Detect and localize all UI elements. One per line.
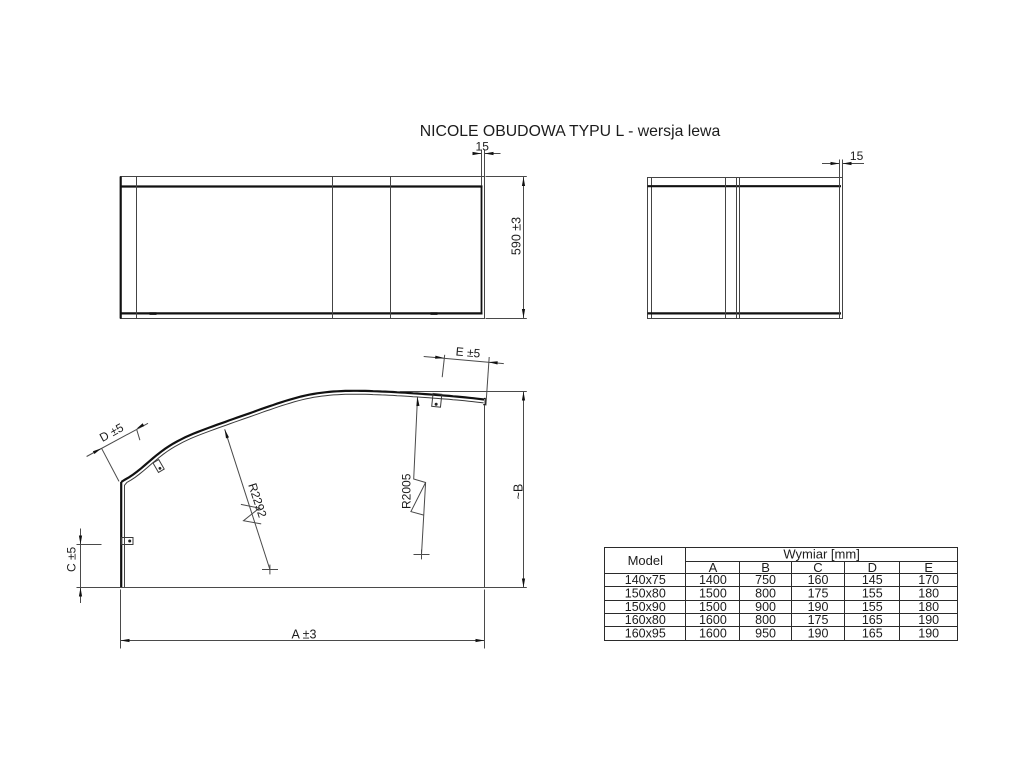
svg-text:160x80: 160x80 (625, 613, 666, 627)
svg-text:150x90: 150x90 (625, 600, 666, 614)
svg-text:180: 180 (918, 587, 939, 601)
svg-text:180: 180 (918, 600, 939, 614)
svg-text:750: 750 (755, 573, 776, 587)
svg-text:1600: 1600 (699, 627, 727, 641)
svg-text:150x80: 150x80 (625, 587, 666, 601)
svg-text:165: 165 (862, 627, 883, 641)
svg-text:165: 165 (862, 613, 883, 627)
svg-text:15: 15 (850, 149, 864, 163)
svg-text:NICOLE OBUDOWA TYPU L - wersja: NICOLE OBUDOWA TYPU L - wersja lewa (420, 123, 721, 140)
svg-text:170: 170 (918, 573, 939, 587)
svg-text:1500: 1500 (699, 587, 727, 601)
svg-text:A ±3: A ±3 (292, 628, 317, 642)
svg-text:~B: ~B (511, 484, 525, 500)
svg-text:190: 190 (918, 613, 939, 627)
svg-text:E ±5: E ±5 (455, 344, 481, 360)
svg-text:145: 145 (862, 573, 883, 587)
svg-text:175: 175 (808, 613, 829, 627)
svg-text:900: 900 (755, 600, 776, 614)
svg-text:190: 190 (918, 627, 939, 641)
svg-text:160x95: 160x95 (625, 627, 666, 641)
svg-text:800: 800 (755, 613, 776, 627)
svg-text:R2005: R2005 (399, 473, 413, 509)
svg-text:140x75: 140x75 (625, 573, 666, 587)
svg-text:1600: 1600 (699, 613, 727, 627)
svg-text:800: 800 (755, 587, 776, 601)
svg-text:160: 160 (808, 573, 829, 587)
svg-text:590 ±3: 590 ±3 (509, 217, 523, 255)
svg-text:Model: Model (628, 553, 664, 568)
svg-text:1500: 1500 (699, 600, 727, 614)
svg-text:190: 190 (808, 627, 829, 641)
svg-text:C ±5: C ±5 (65, 546, 79, 572)
svg-text:175: 175 (808, 587, 829, 601)
svg-text:R2292: R2292 (245, 481, 269, 519)
svg-text:155: 155 (862, 600, 883, 614)
svg-text:190: 190 (808, 600, 829, 614)
svg-text:15: 15 (476, 140, 490, 154)
svg-text:950: 950 (755, 627, 776, 641)
svg-text:155: 155 (862, 587, 883, 601)
svg-text:D ±5: D ±5 (97, 420, 126, 445)
svg-text:1400: 1400 (699, 573, 727, 587)
